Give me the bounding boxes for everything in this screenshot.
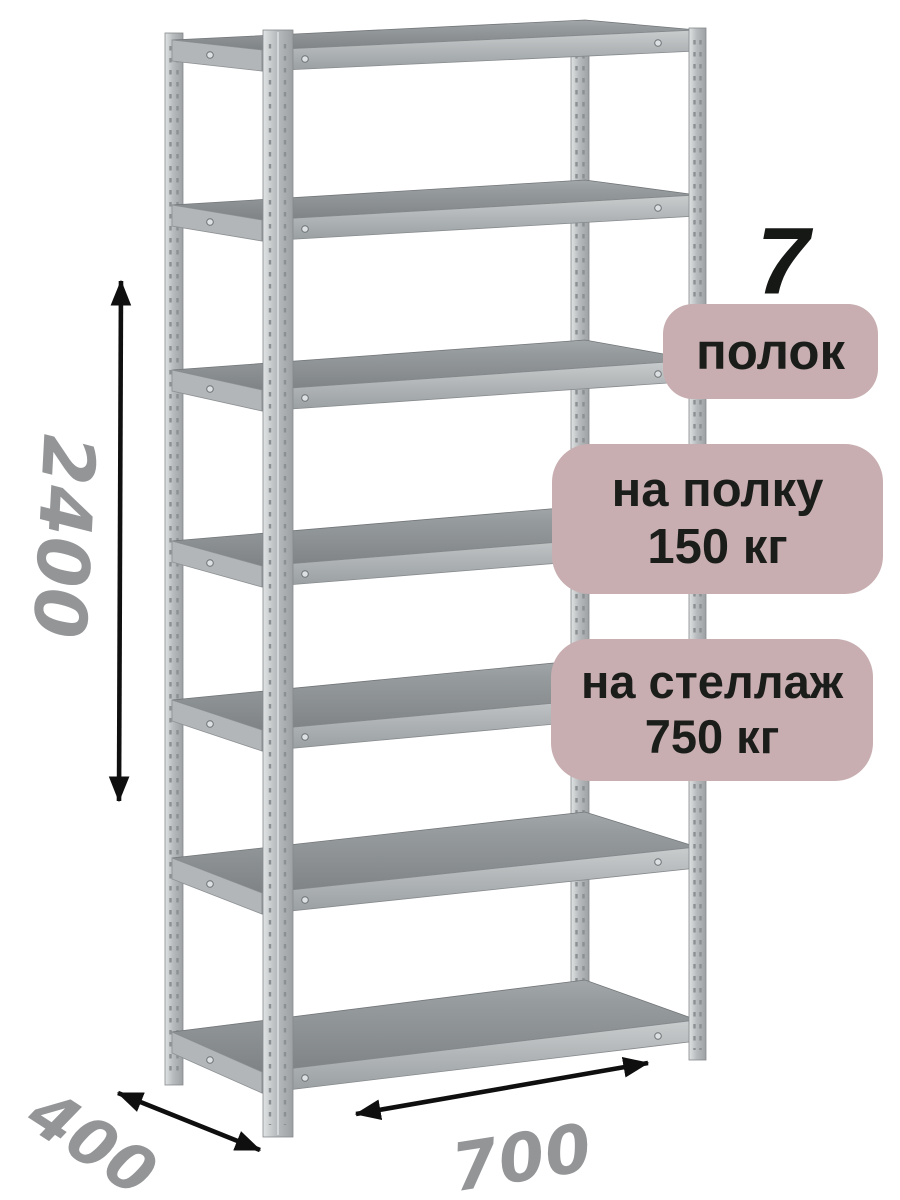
badge-rack-load-line1: на стеллаж [581,655,843,710]
height-arrow [119,281,121,801]
rack-shelf-3 [172,340,697,411]
badge-shelf-count: полок [663,304,878,399]
rack-post-front-left [263,30,293,1137]
dimension-height-label: 2400 [17,433,112,642]
badge-shelf-load-line1: на полку [612,462,824,519]
rack-shelf-2 [172,180,697,241]
badge-shelf-load: на полку 150 кг [552,444,883,594]
rack-shelf-1 [172,20,697,71]
badge-rack-load: на стеллаж 750 кг [551,639,873,781]
badge-shelf-count-label: полок [696,322,845,381]
product-image-canvas: 7 полок на полку 150 кг на стеллаж 750 к… [0,0,900,1200]
badge-shelf-load-line2: 150 кг [647,519,787,576]
rack-shelf-6 [172,812,697,914]
shelf-count-number: 7 [757,208,810,317]
badge-rack-load-line2: 750 кг [645,710,780,765]
shelving-rack-illustration [0,0,900,1200]
rack-shelf-7 [172,980,697,1093]
